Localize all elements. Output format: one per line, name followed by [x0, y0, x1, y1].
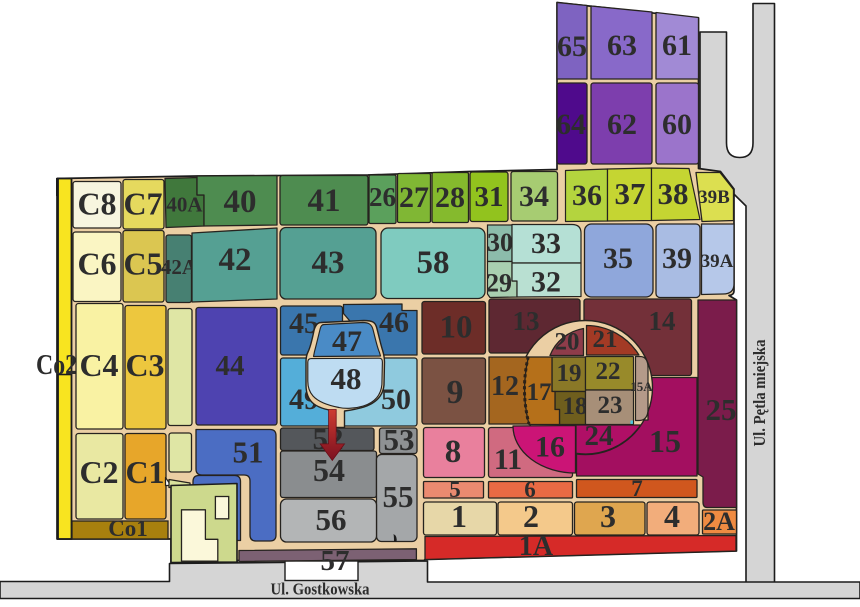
svg-text:17: 17	[527, 379, 552, 406]
svg-text:30: 30	[487, 228, 513, 257]
svg-text:65: 65	[557, 30, 587, 63]
svg-text:11: 11	[494, 443, 522, 476]
svg-text:58: 58	[417, 245, 450, 281]
svg-text:Co1: Co1	[108, 516, 148, 541]
svg-text:1: 1	[451, 498, 467, 534]
svg-text:43: 43	[312, 245, 345, 281]
svg-text:63: 63	[607, 29, 637, 62]
svg-text:3: 3	[600, 498, 616, 534]
svg-text:14: 14	[649, 306, 676, 336]
svg-text:20: 20	[555, 329, 580, 356]
svg-text:Ul. Pętla miejska: Ul. Pętla miejska	[750, 339, 769, 446]
svg-text:41: 41	[308, 183, 341, 219]
svg-text:C2: C2	[79, 454, 118, 490]
svg-text:2A: 2A	[703, 507, 735, 536]
svg-text:57: 57	[321, 545, 350, 577]
svg-text:Co2: Co2	[36, 350, 77, 381]
svg-text:32: 32	[531, 266, 561, 299]
svg-text:39B: 39B	[698, 187, 730, 208]
svg-text:C8: C8	[77, 186, 116, 222]
svg-text:61: 61	[662, 29, 692, 62]
svg-text:28: 28	[435, 181, 465, 214]
svg-text:8: 8	[445, 434, 462, 470]
svg-text:56: 56	[316, 502, 347, 537]
svg-text:C7: C7	[123, 186, 162, 222]
svg-text:23: 23	[598, 392, 623, 419]
svg-text:21: 21	[593, 326, 618, 353]
svg-text:44: 44	[216, 350, 245, 382]
svg-text:48: 48	[331, 361, 362, 396]
svg-text:13: 13	[513, 306, 540, 336]
svg-text:39: 39	[662, 242, 692, 275]
svg-text:1A: 1A	[519, 531, 554, 562]
svg-text:38: 38	[658, 176, 689, 211]
svg-text:47: 47	[332, 325, 362, 358]
svg-text:C6: C6	[77, 246, 116, 282]
svg-text:50: 50	[381, 383, 411, 416]
svg-text:31: 31	[475, 181, 504, 213]
svg-text:C1: C1	[125, 454, 164, 490]
svg-text:29: 29	[486, 269, 512, 298]
svg-text:12: 12	[491, 371, 519, 402]
svg-text:4: 4	[664, 498, 680, 534]
svg-text:33: 33	[531, 227, 561, 260]
svg-text:C5: C5	[123, 246, 162, 282]
svg-text:Ul. Gostkowska: Ul. Gostkowska	[271, 580, 370, 599]
svg-text:2: 2	[523, 498, 539, 534]
svg-text:15A: 15A	[630, 379, 653, 394]
svg-text:40A: 40A	[166, 193, 203, 217]
svg-text:9: 9	[447, 374, 464, 411]
svg-text:64: 64	[556, 108, 586, 141]
svg-text:39A: 39A	[701, 251, 734, 272]
svg-text:24: 24	[585, 420, 614, 452]
svg-text:27: 27	[399, 181, 429, 214]
svg-text:62: 62	[607, 108, 637, 141]
svg-text:7: 7	[631, 476, 643, 501]
svg-text:26: 26	[369, 182, 396, 212]
svg-text:10: 10	[440, 310, 473, 346]
svg-text:42: 42	[219, 242, 252, 278]
svg-text:55: 55	[383, 479, 414, 514]
svg-text:40: 40	[224, 184, 257, 220]
svg-text:34: 34	[519, 180, 549, 213]
svg-text:15: 15	[649, 423, 681, 459]
svg-text:53: 53	[384, 422, 415, 457]
svg-text:25: 25	[706, 392, 737, 427]
svg-text:51: 51	[233, 435, 264, 470]
svg-text:37: 37	[615, 176, 646, 211]
svg-text:C4: C4	[79, 347, 118, 383]
svg-text:19: 19	[557, 360, 582, 387]
svg-text:22: 22	[596, 358, 621, 385]
svg-text:C3: C3	[125, 347, 164, 383]
svg-text:60: 60	[662, 108, 692, 141]
svg-text:54: 54	[313, 452, 345, 488]
svg-text:16: 16	[535, 431, 565, 464]
svg-text:46: 46	[379, 306, 409, 339]
svg-text:18: 18	[563, 393, 588, 420]
svg-text:36: 36	[572, 179, 602, 212]
svg-text:35: 35	[603, 242, 633, 275]
